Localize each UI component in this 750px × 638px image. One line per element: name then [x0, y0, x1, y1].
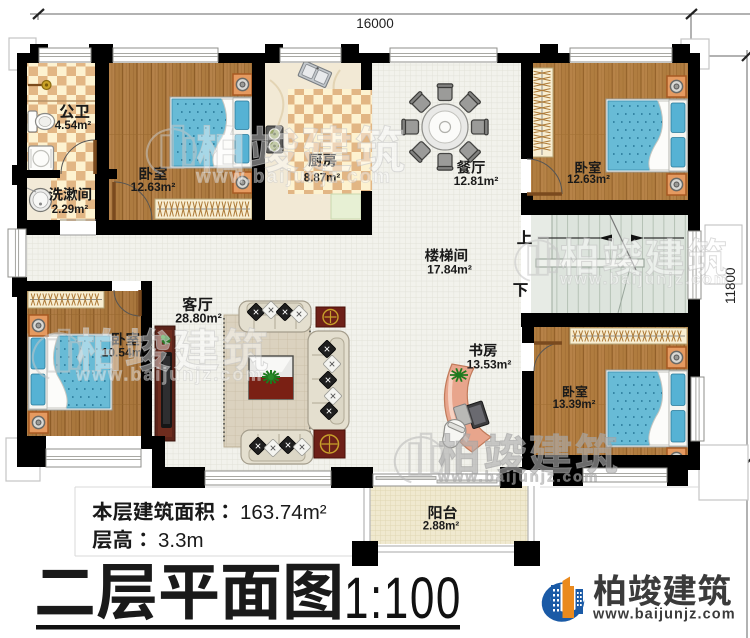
svg-text:13.53m²: 13.53m²	[467, 358, 512, 372]
svg-text:2.88m²: 2.88m²	[423, 521, 460, 533]
svg-text:17.84m²: 17.84m²	[427, 263, 472, 277]
svg-text:28.80m²: 28.80m²	[175, 312, 222, 326]
svg-text:2.29m²: 2.29m²	[52, 204, 89, 216]
svg-text:12.81m²: 12.81m²	[454, 174, 499, 188]
svg-text:www.baijunjz.com: www.baijunjz.com	[75, 365, 263, 385]
svg-text:1:100: 1:100	[344, 565, 462, 630]
svg-text:www.baijunjz.com: www.baijunjz.com	[195, 166, 392, 187]
svg-text:3.3m: 3.3m	[158, 529, 204, 552]
svg-text:www.baijunjz.com: www.baijunjz.com	[592, 607, 736, 623]
svg-text:16000: 16000	[356, 16, 394, 31]
svg-text:www.baijunjz.com: www.baijunjz.com	[437, 468, 599, 485]
svg-text:12.63m²: 12.63m²	[567, 174, 610, 186]
svg-text:12.63m²: 12.63m²	[131, 180, 176, 194]
svg-text:13.39m²: 13.39m²	[553, 399, 596, 411]
svg-text:www.baijunjz.com: www.baijunjz.com	[559, 271, 730, 288]
svg-text:4.54m²: 4.54m²	[55, 120, 92, 132]
svg-text:163.74m²: 163.74m²	[240, 501, 327, 524]
